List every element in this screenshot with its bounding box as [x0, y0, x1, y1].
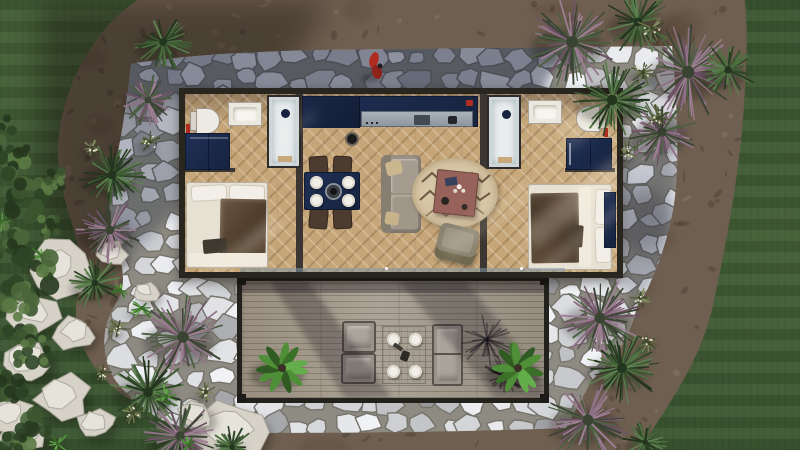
flower [453, 189, 457, 193]
dirt-speckle [727, 376, 733, 387]
center-bowl [327, 185, 340, 198]
kitchen-stool [347, 134, 357, 144]
dining-chair [308, 207, 329, 230]
cutlery [393, 342, 403, 351]
red-towel-right [604, 128, 608, 137]
plate [387, 365, 400, 378]
sink-right [528, 100, 562, 124]
knob [376, 122, 378, 124]
flagstone [128, 365, 159, 384]
flower [461, 189, 465, 193]
plate [409, 333, 422, 346]
plate [342, 176, 355, 189]
dirt-speckle [379, 438, 382, 441]
shower-head [502, 110, 511, 119]
shower-right [487, 95, 521, 169]
shower-head [281, 109, 290, 118]
washer-cabinet-left [185, 133, 230, 170]
dirt-speckle [731, 246, 742, 257]
deck-lounge-chair [342, 321, 376, 353]
knob [371, 122, 373, 124]
cabinet-highlight [190, 137, 228, 139]
door-light [520, 267, 523, 270]
steel-counter [361, 111, 473, 127]
deck-post [237, 394, 246, 403]
kitchen-cabinet-block [303, 97, 360, 128]
toilet-bowl [196, 108, 220, 134]
sink-slot [414, 115, 430, 125]
book [445, 177, 458, 187]
cabinet-right [566, 138, 612, 170]
deck-lounge-chair [341, 353, 376, 384]
dirt-speckle [742, 241, 750, 248]
wardrobe-right [604, 192, 616, 248]
dirt-speckle [731, 344, 739, 355]
flagstone [114, 410, 140, 435]
dirt-speckle [744, 245, 752, 254]
sink-left [228, 102, 262, 126]
dirt-speckle [678, 439, 687, 445]
dirt-mottle [639, 14, 692, 43]
plant-shadow [462, 315, 510, 365]
plate [310, 176, 323, 189]
dirt-speckle [743, 280, 752, 287]
interior-floor [185, 94, 617, 272]
flagstone [90, 394, 113, 410]
toilet-right [576, 106, 606, 132]
rock [9, 346, 41, 372]
shower-left [267, 95, 301, 168]
sheet-fold [189, 253, 267, 266]
toilet-tank [599, 109, 606, 129]
armchair-cushion [441, 227, 475, 254]
cabinet-handle [569, 143, 571, 165]
dining-chair [332, 208, 352, 230]
throw-pillow [384, 211, 400, 226]
bed-left [186, 182, 268, 268]
table-grill-item [400, 350, 411, 362]
aerial-house-render [0, 0, 800, 450]
deck-post [540, 394, 549, 403]
kettle [448, 116, 457, 124]
dirt-speckle [654, 409, 658, 413]
dining-table [304, 172, 360, 210]
flagstone [559, 394, 575, 409]
toilet-left [190, 108, 220, 134]
knob [366, 122, 368, 124]
dirt-mottle [531, 3, 577, 17]
plant-shadow [485, 356, 525, 392]
bench-seam [432, 353, 463, 355]
foot-throw [566, 224, 583, 247]
wood-deck [237, 276, 549, 403]
dirt-speckle [713, 384, 727, 398]
dirt-speckle [698, 412, 705, 421]
plate [342, 194, 355, 207]
cabinet-seam [208, 134, 209, 171]
armchair [433, 222, 481, 267]
sink-basin [233, 107, 257, 121]
red-towel-left [186, 124, 190, 133]
plate [310, 194, 323, 207]
table-dish [461, 204, 468, 211]
red-kitchen-item [466, 100, 473, 106]
coffee-table [433, 169, 479, 217]
foot-bench [202, 238, 227, 254]
toilet-bowl [576, 106, 600, 132]
dirt-speckle [743, 344, 753, 354]
table-dish [441, 197, 450, 206]
deck-bench-sofa [432, 324, 463, 386]
cabinet-seam [590, 139, 591, 171]
door-light [385, 267, 388, 270]
sliding-glass-door [240, 268, 565, 272]
sink-basin [533, 105, 557, 119]
deck-table [382, 326, 426, 384]
dirt-speckle [711, 335, 720, 343]
flagstone [133, 417, 155, 437]
house [179, 88, 623, 278]
bed-right [528, 184, 612, 270]
dirt-speckle [47, 343, 54, 348]
shower-mat [278, 156, 292, 162]
shower-mat [498, 157, 512, 163]
kitchen-counter [302, 96, 478, 127]
plate [409, 365, 422, 378]
dirt-speckle [686, 408, 698, 419]
